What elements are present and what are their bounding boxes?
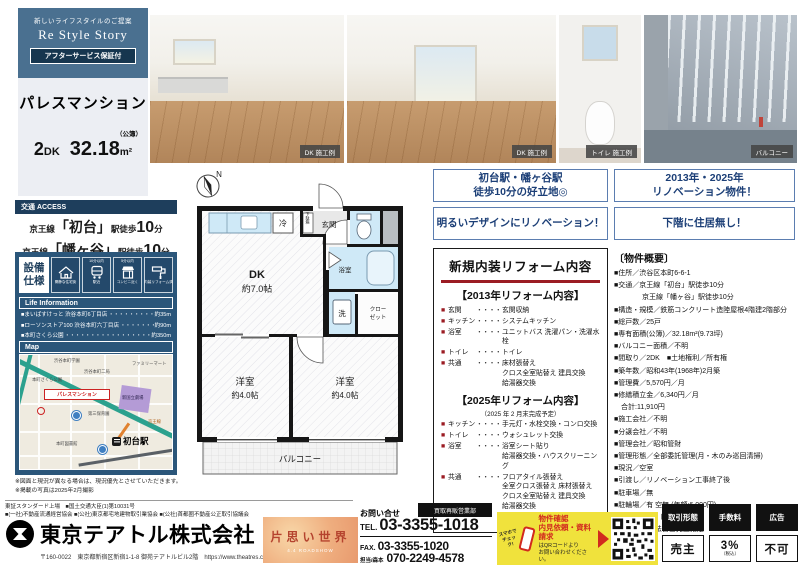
info-panel: 設備仕様 閑静な住宅街 10分以内 駅近 5分以内 コンビ: [15, 252, 177, 475]
area-number: 32.18: [70, 138, 120, 161]
deal-header: 手数料: [709, 504, 751, 531]
overview-row: ■管理費／5,570円／月: [614, 378, 798, 390]
card-header: 新しいライフスタイルのご提案 Re Style Story アフターサービス保証…: [18, 8, 148, 78]
feature-caption: コンビニ近く: [117, 280, 139, 285]
dk-size-label: 約7.0帖: [242, 283, 273, 294]
floor-plan: DK 約7.0帖 玄関 下駄箱 冷 浴室 洗 クロー ゼット 洋室 約4.0帖 …: [197, 182, 403, 478]
note-line: ※掲載の写真は2025年2月撮影: [15, 487, 187, 496]
bullet-icon: ■: [441, 420, 448, 430]
layout-unit: DK: [44, 146, 60, 158]
department-badge: 買取再販営業部: [418, 503, 492, 517]
house-icon: [57, 264, 75, 280]
map-label: 本町さくら公園: [32, 377, 62, 383]
overview-row: ■住所／渋谷区本町6-6-1: [614, 268, 798, 280]
poi-distance: 約90m: [155, 321, 171, 332]
qr-title: 物件確認 内見依頼・資料請求: [539, 514, 598, 541]
photo-railing: [668, 15, 797, 122]
reform-title: 新規内装リフォーム内容: [441, 256, 600, 275]
overview-row: ■バルコニー面積／不明: [614, 341, 798, 353]
reform-2013-heading: 【2013年リフォーム内容】: [441, 288, 600, 303]
map-property-marker: [37, 407, 45, 415]
company-name: 東京テアトル株式会社: [40, 519, 255, 549]
feature-caption: 駅近: [93, 280, 100, 285]
brand-logo: Re Style Story: [18, 27, 148, 43]
minutes-unit: 分: [154, 224, 163, 234]
photo-balcony: バルコニー: [644, 15, 797, 163]
closet-label: ゼット: [370, 313, 387, 321]
overview-row: ■施工会社／不明: [614, 414, 798, 426]
reform-label: トイレ: [448, 431, 476, 441]
walk-label: 駅徒歩: [111, 224, 137, 234]
reform-label: 共通: [448, 359, 476, 388]
photo-dk-living: DK 施工例: [347, 15, 556, 163]
tel-row: TEL. 03-3355-1018: [360, 516, 492, 537]
north-label: N: [216, 170, 222, 179]
overview-row: ■修繕積立金／6,340円／月: [614, 390, 798, 402]
map-road: [20, 431, 173, 433]
dot-leader: ・・・・・・・・・・・・: [476, 442, 502, 471]
reform-row: ■キッチン・・・・・・・・・・・・手元灯・水栓交換・コンロ交換: [441, 420, 600, 430]
license-line: 東証スタンダード上場 ■国土交通大臣(1)第10031号: [5, 503, 357, 511]
smartphone-note: スマホで チェック!: [498, 528, 520, 550]
poi-name: ■ローソンストア100 渋谷本町六丁目店: [21, 321, 119, 332]
reform-row: ■トイレ・・・・・・・・・・・・トイレ: [441, 348, 600, 358]
overview-row: ■構造・規模／鉄筋コンクリート造陸屋根4階建2階部分: [614, 305, 798, 317]
reform-row: ■浴室・・・・・・・・・・・・浴室シート貼り 給湯器交換・ハウスクリーニング: [441, 442, 600, 471]
feature-convenience: 5分以内 コンビニ近く: [113, 257, 142, 293]
metro-station-icon: [72, 411, 81, 420]
highlight-bright-design: 明るいデザインにリノベーション！: [433, 207, 608, 240]
property-name: パレスマンション: [18, 92, 148, 113]
ad-subtitle: 4.4 ROADSHOW: [287, 548, 334, 553]
fridge-label: 冷: [279, 218, 287, 228]
photo-toilet-bowl: [585, 101, 615, 145]
map-label: 京王線: [148, 419, 161, 425]
overview-row: ■交通／京王線「初台」駅徒歩10分: [614, 280, 798, 292]
feature-quiet: 閑静な住宅街: [51, 257, 80, 293]
bedroom1-label: 洋室: [235, 376, 254, 388]
dot-leader: ・・・・・・・・・・・・: [476, 359, 502, 388]
reform-value: ユニットバス 洗濯パン・洗濯水栓: [502, 328, 600, 347]
map-road: [138, 355, 140, 470]
life-info-item: ■まいばすけっと 渋谷本町6丁目店 ・・・・・・・・・・・・・・ 約35m: [21, 310, 171, 321]
deal-value: 不可: [765, 541, 790, 557]
dot-leader: ・・・・・・・・・・・・: [476, 328, 502, 347]
overview-row: ■駐車場／無: [614, 488, 798, 500]
bullet-icon: ■: [441, 359, 448, 388]
bullet-icon: ■: [441, 328, 448, 347]
hatsudai-station: 初台駅: [112, 435, 149, 447]
dk-label: DK: [249, 269, 265, 281]
qr-text-block: 物件確認 内見依頼・資料請求 はQRコードより お問い合わせください。: [539, 514, 598, 564]
smartphone-icon: [519, 525, 537, 551]
access-line: 京王線「初台」駅徒歩10分: [15, 217, 177, 240]
dot-leader: ・・・・・・・・・・・・・・・・・・・・: [65, 331, 151, 342]
features-row: 設備仕様 閑静な住宅街 10分以内 駅近 5分以内 コンビ: [19, 257, 173, 293]
access-header: 交通 ACCESS: [15, 200, 177, 214]
qr-code: [611, 517, 655, 561]
overview-row: ■管理形態／全部委託管理(月・木のみ巡回清掃): [614, 451, 798, 463]
photo-caption: バルコニー: [751, 145, 793, 158]
poi-name: ■まいばすけっと 渋谷本町6丁目店: [21, 310, 107, 321]
bullet-icon: ■: [441, 317, 448, 327]
overview-row: 合計:11,910円: [614, 402, 798, 414]
reform-2025-note: （2025 年 2 月末完成予定）: [441, 409, 600, 418]
dot-leader: ・・・・・・・・・・・・・・: [108, 310, 153, 321]
feature-renovated: 内装リフォーム済: [144, 257, 173, 293]
entrance-label: 玄関: [322, 219, 337, 229]
deal-value: 売主: [671, 541, 696, 557]
map-label: 新国立劇場: [122, 395, 143, 401]
station-icon: [112, 437, 121, 446]
reform-value: システムキッチン: [502, 317, 600, 327]
photo-toilet: トイレ 施工例: [559, 15, 641, 163]
overview-row: ■総戸数／25戸: [614, 317, 798, 329]
life-info-item: ■ローソンストア100 渋谷本町六丁目店 ・・・・・・・・・・ 約90m: [21, 321, 171, 332]
store-icon: [119, 264, 137, 280]
reform-label: キッチン: [448, 420, 476, 430]
reform-row: ■浴室・・・・・・・・・・・・ユニットバス 洗濯パン・洗濯水栓: [441, 328, 600, 347]
property-spec: 2 DK 32.18 m²: [18, 138, 148, 161]
overview-row: ■専有面積(公簿)／32.18m²(9.73坪): [614, 329, 798, 341]
reform-value: ウォシュレット交換: [502, 431, 600, 441]
note-line: ※図面と現況が異なる場合は、現況優先とさせていただきます。: [15, 478, 187, 487]
map-label: 渋谷本町二局: [84, 369, 110, 375]
dot-leader: ・・・・・・・・・・・・: [476, 348, 502, 358]
map-property-label: パレスマンション: [44, 389, 110, 400]
feature-station: 10分以内 駅近: [82, 257, 111, 293]
deal-column-type: 取引形態 売主: [662, 504, 704, 562]
layout-number: 2: [34, 139, 44, 160]
life-info-item: ■本町さくら公園 ・・・・・・・・・・・・・・・・・・・・ 約350m: [21, 331, 171, 342]
bedroom2-size: 約4.0帖: [331, 390, 358, 400]
highlight-renovation-years: 2013年・2025年 リノベーション物件！: [614, 169, 795, 202]
deal-column-ad: 広告 不可: [756, 504, 798, 562]
reform-2025-heading: 【2025年リフォーム内容】: [441, 393, 600, 408]
deal-header: 取引形態: [662, 504, 704, 531]
qr-body: はQRコードより お問い合わせください。: [539, 543, 598, 564]
reform-rule: [441, 280, 600, 283]
overview-row: ■管理会社／昭和管財: [614, 439, 798, 451]
railway-name: 京王線: [29, 224, 55, 234]
disclaimer-notes: ※図面と現況が異なる場合は、現況優先とさせていただきます。 ※掲載の写真は202…: [15, 478, 187, 496]
area-unit: m²: [120, 147, 132, 158]
photo-dk-kitchen: DK 施工例: [150, 15, 344, 163]
dot-leader: ・・・・・・・・・・: [120, 321, 153, 332]
map-label: ファミリーマート: [132, 361, 166, 367]
photo-caption: トイレ 施工例: [586, 145, 637, 158]
overview-row: ■引渡し／リノベーション工事終了後: [614, 475, 798, 487]
deal-column-fee: 手数料 3% （税込）: [709, 504, 751, 562]
deal-fee-note: （税込）: [721, 551, 739, 557]
area-map: 渋谷本町学園 本町さくら公園 渋谷本町二局 ファミリーマート 新国立劇場 第三保…: [19, 354, 173, 470]
map-header: Map: [19, 341, 173, 353]
dot-leader: ・・・・・・・・・・・・: [476, 317, 502, 327]
reform-value: 手元灯・水栓交換・コンロ交換: [502, 420, 600, 430]
reform-value: フロアタイル張替え 全室クロス張替え 床材張替え クロス全室貼替え 建具交換 給…: [502, 473, 600, 511]
walk-minutes: 10: [136, 219, 154, 236]
map-label: 第三保育園: [88, 411, 109, 417]
reform-value: 浴室シート貼り 給湯器交換・ハウスクリーニング: [502, 442, 600, 471]
arrow-right-icon: [598, 530, 609, 548]
reform-label: 玄関: [448, 306, 476, 316]
bedroom2-label: 洋室: [335, 376, 354, 388]
company-address: 〒160-0022 東京都新宿区新宿1-1-8 御苑テアトルビル2階 https…: [40, 552, 273, 561]
tel-number: 03-3355-1018: [379, 516, 478, 535]
deal-terms-table: 取引形態 売主 手数料 3% （税込） 広告 不可: [662, 504, 798, 562]
map-label: 本町図書館: [56, 441, 77, 447]
closet-label: クロー: [370, 306, 387, 313]
life-info-header: Life Information: [19, 297, 173, 309]
bedroom1-size: 約4.0帖: [231, 390, 258, 400]
dot-leader: ・・・・・・・・・・・・: [476, 431, 502, 441]
ad-title: 片思い世界: [270, 528, 350, 545]
poi-name: ■本町さくら公園: [21, 331, 64, 342]
balcony-label: バルコニー: [279, 454, 321, 464]
reform-value: 玄関収納: [502, 306, 600, 316]
mobile-label: 担当/森本: [360, 556, 384, 564]
company-logo: [5, 519, 35, 549]
poi-distance: 約350m: [151, 331, 171, 342]
map-road: [20, 403, 173, 405]
mobile-number: 070-2249-4578: [387, 551, 465, 565]
highlight-location: 初台駅・幡ヶ谷駅 徒歩10分の好立地◎: [433, 169, 608, 202]
reform-row: ■玄関・・・・・・・・・・・・玄関収納: [441, 306, 600, 316]
reform-label: 浴室: [448, 442, 476, 471]
photo-window: [173, 39, 216, 66]
reform-row: ■共通・・・・・・・・・・・・床材張替え クロス全室貼替え 建具交換 給湯器交換: [441, 359, 600, 388]
feature-caption: 内装リフォーム済: [144, 280, 173, 285]
washer-label: 洗: [338, 308, 346, 318]
photo-window: [582, 25, 618, 61]
highlight-no-lower-unit: 下階に住居無し！: [614, 207, 795, 240]
contact-block: お問い合せ 買取再販営業部 TEL. 03-3355-1018 FAX. 03-…: [360, 503, 492, 521]
life-info-list: ■まいばすけっと 渋谷本町6丁目店 ・・・・・・・・・・・・・・ 約35m ■ロ…: [21, 310, 171, 342]
feature-caption: 閑静な住宅街: [55, 280, 77, 285]
overview-row: ■現況／空室: [614, 463, 798, 475]
overview-title: 〔物件概要〕: [614, 250, 798, 265]
tagline: 新しいライフスタイルのご提案: [18, 15, 148, 25]
overview-row: 京王線「幡ヶ谷」駅徒歩10分: [614, 292, 798, 304]
reform-box: 新規内装リフォーム内容 【2013年リフォーム内容】 ■玄関・・・・・・・・・・…: [433, 248, 608, 533]
bath-label: 浴室: [339, 265, 353, 274]
photo-caption: DK 施工例: [300, 145, 340, 158]
reform-row: ■トイレ・・・・・・・・・・・・ウォシュレット交換: [441, 431, 600, 441]
bullet-icon: ■: [441, 306, 448, 316]
property-card: 新しいライフスタイルのご提案 Re Style Story アフターサービス保証…: [18, 8, 148, 196]
metro-station-icon: [98, 445, 107, 454]
reform-value: トイレ: [502, 348, 600, 358]
movie-ad-banner: 片思い世界 4.4 ROADSHOW: [263, 517, 358, 563]
overview-row: ■築年数／昭和43年(1968年)2月築: [614, 366, 798, 378]
shoebox-label: 下駄箱: [306, 212, 311, 225]
property-overview: 〔物件概要〕 ■住所／渋谷区本町6-6-1 ■交通／京王線「初台」駅徒歩10分 …: [614, 250, 798, 536]
flyer-page: 新しいライフスタイルのご提案 Re Style Story アフターサービス保証…: [0, 0, 800, 565]
photo-red-object: [759, 117, 763, 127]
mobile-row: 担当/森本 070-2249-4578: [360, 551, 492, 565]
map-label: 渋谷本町学園: [54, 358, 80, 364]
overview-row: ■間取り／2DK ■土地権利／所有権: [614, 353, 798, 365]
company-block: 東京テアトル株式会社: [5, 519, 255, 549]
reform-label: 浴室: [448, 328, 476, 347]
reform-value: 床材張替え クロス全室貼替え 建具交換 給湯器交換: [502, 359, 600, 388]
reform-row: ■キッチン・・・・・・・・・・・・システムキッチン: [441, 317, 600, 327]
dot-leader: ・・・・・・・・・・・・: [476, 306, 502, 316]
train-icon: [88, 264, 106, 280]
after-service-badge: アフターサービス保証付: [30, 48, 136, 64]
photo-caption: DK 施工例: [512, 145, 552, 158]
station-label: 初台駅: [123, 435, 149, 447]
paint-roller-icon: [150, 264, 168, 280]
features-label: 設備仕様: [19, 257, 49, 293]
dot-leader: ・・・・・・・・・・・・: [476, 420, 502, 430]
photo-counter: [158, 77, 228, 93]
bullet-icon: ■: [441, 431, 448, 441]
reform-label: キッチン: [448, 317, 476, 327]
reform-label: トイレ: [448, 348, 476, 358]
bullet-icon: ■: [441, 442, 448, 471]
deal-header: 広告: [756, 504, 798, 531]
bullet-icon: ■: [441, 348, 448, 358]
tel-label: TEL.: [360, 523, 377, 532]
qr-inquiry-box: スマホで チェック! 物件確認 内見依頼・資料請求 はQRコードより お問い合わ…: [497, 512, 658, 565]
station-name: 「初台」: [55, 219, 111, 235]
poi-distance: 約35m: [155, 310, 171, 321]
overview-row: ■分譲会社／不明: [614, 427, 798, 439]
area-note: （公簿）: [116, 128, 142, 138]
footer-divider: [5, 500, 353, 501]
